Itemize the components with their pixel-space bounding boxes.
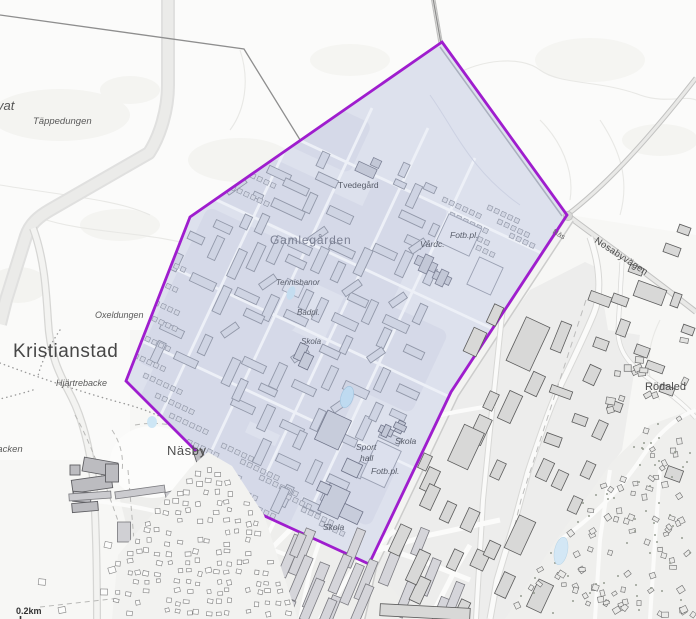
svg-text:Vårdc.: Vårdc.: [420, 239, 445, 249]
svg-text:Hjärtrebacke: Hjärtrebacke: [56, 378, 107, 388]
svg-text:Fotb.pl.: Fotb.pl.: [371, 466, 399, 476]
svg-text:hall: hall: [360, 453, 374, 463]
svg-text:backen: backen: [0, 444, 23, 455]
svg-text:Tvedegård: Tvedegård: [338, 180, 379, 190]
svg-text:Badpl.: Badpl.: [297, 308, 320, 317]
svg-text:Skola: Skola: [323, 522, 345, 532]
svg-text:Näsby: Näsby: [167, 443, 206, 458]
svg-text:Oxeldungen: Oxeldungen: [95, 310, 144, 320]
svg-text:Täppedungen: Täppedungen: [33, 116, 92, 127]
svg-text:Rödaled: Rödaled: [645, 381, 686, 393]
svg-text:Gamlegården: Gamlegården: [270, 233, 352, 247]
svg-text:Skola: Skola: [301, 337, 322, 346]
svg-text:Sport: Sport: [356, 442, 377, 452]
svg-text:vat: vat: [0, 98, 16, 113]
svg-text:Skola: Skola: [395, 436, 417, 446]
svg-text:Tennisbanor: Tennisbanor: [276, 278, 320, 287]
svg-text:Fotb.pl.: Fotb.pl.: [450, 230, 478, 240]
svg-text:0.2km: 0.2km: [16, 606, 42, 616]
svg-text:Kristianstad: Kristianstad: [13, 341, 118, 362]
